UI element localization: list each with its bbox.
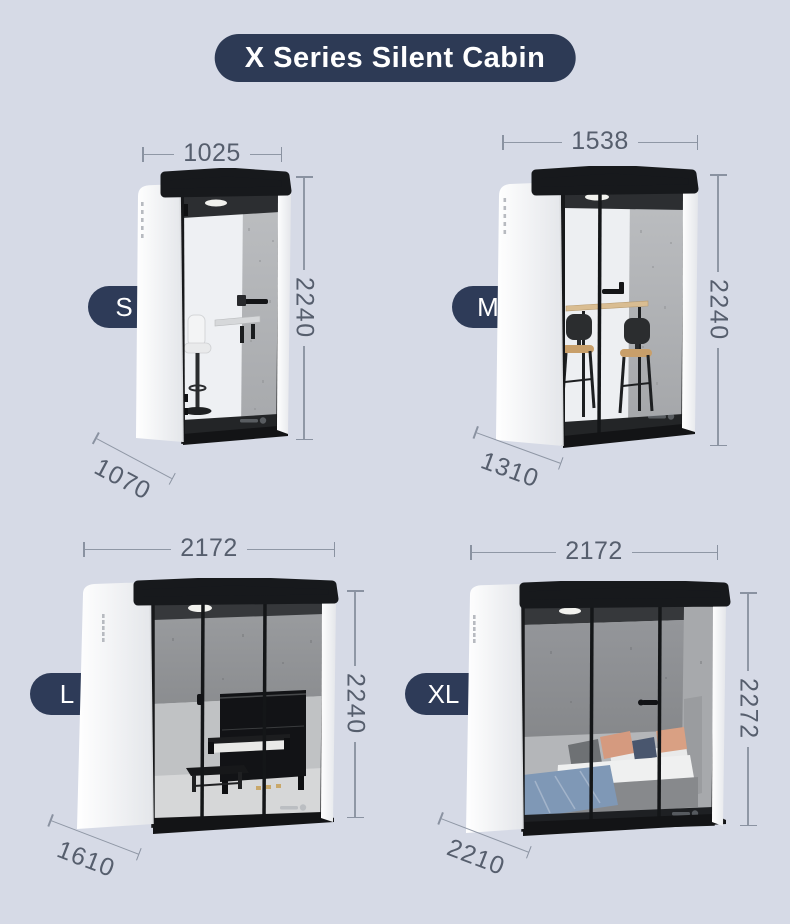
ceiling-lamp [205, 200, 227, 207]
cabin-illustration-m [490, 166, 704, 458]
side-wall [77, 582, 153, 829]
width-value-m: 1538 [571, 127, 629, 156]
width-dimension-l: 2172 [83, 535, 335, 564]
dimension-tick [740, 825, 757, 827]
side-wall [496, 182, 563, 446]
dimension-tick [710, 445, 727, 447]
corner-pillar [682, 190, 698, 432]
cabin-l-interior [153, 600, 324, 826]
ceiling-lamp [188, 604, 212, 612]
height-dimension-s: 2240 [292, 176, 316, 440]
dimension-line [638, 142, 697, 144]
dimension-tick [347, 817, 364, 819]
dimension-line [717, 176, 719, 273]
height-value-xl: 2272 [734, 678, 763, 740]
roof [165, 172, 287, 193]
dimension-line [354, 742, 356, 817]
width-value-l: 2172 [180, 534, 238, 563]
dimension-line [747, 594, 749, 672]
dimension-tick [697, 135, 699, 150]
cabin-illustration-l [72, 578, 340, 834]
roof [536, 169, 694, 191]
dimension-tick [717, 545, 719, 560]
dimension-line [472, 552, 557, 554]
height-dimension-l: 2240 [343, 590, 367, 818]
width-dimension-s: 1025 [142, 140, 282, 169]
dimension-tick [334, 542, 336, 557]
dimension-line [504, 142, 563, 144]
cabin-m-interior [562, 186, 685, 444]
width-value-s: 1025 [183, 139, 241, 168]
height-value-s: 2240 [290, 277, 319, 339]
dimension-line [354, 592, 356, 667]
dimension-line [85, 549, 172, 551]
width-value-xl: 2172 [565, 537, 623, 566]
cabin-illustration-s [128, 168, 294, 446]
width-dimension-xl: 2172 [470, 538, 718, 567]
side-wall [136, 184, 183, 442]
corner-pillar [712, 603, 726, 826]
height-value-l: 2240 [341, 673, 370, 735]
dimension-tick [558, 457, 564, 470]
dimension-tick [281, 147, 283, 162]
cabin-s-interior [179, 188, 280, 442]
door-handle [638, 700, 658, 706]
dimension-line [717, 348, 719, 445]
width-dimension-m: 1538 [502, 128, 698, 157]
dimension-tick [136, 848, 142, 861]
dimension-tick [296, 439, 313, 441]
roof [524, 583, 726, 604]
dimension-line [144, 154, 175, 156]
dimension-line [247, 549, 334, 551]
page-title: X Series Silent Cabin [215, 34, 576, 82]
dimension-line [632, 552, 717, 554]
dimension-line [747, 747, 749, 825]
dimension-line [250, 154, 281, 156]
door-handle [197, 694, 204, 705]
cabin-xl-interior [523, 603, 716, 830]
height-dimension-m: 2240 [706, 174, 730, 446]
height-value-m: 2240 [704, 279, 733, 341]
dimension-line [303, 346, 305, 439]
corner-pillar [321, 600, 336, 822]
silent-cabin-spec-sheet: X Series Silent Cabin 1025 S [0, 0, 790, 924]
dimension-line [303, 178, 305, 271]
roof [138, 581, 334, 601]
cabin-illustration-xl [460, 581, 732, 838]
size-badge-xl-label: XL [428, 679, 460, 710]
ceiling-lamp [559, 608, 581, 615]
dimension-tick [526, 846, 532, 859]
height-dimension-xl: 2272 [736, 592, 760, 826]
